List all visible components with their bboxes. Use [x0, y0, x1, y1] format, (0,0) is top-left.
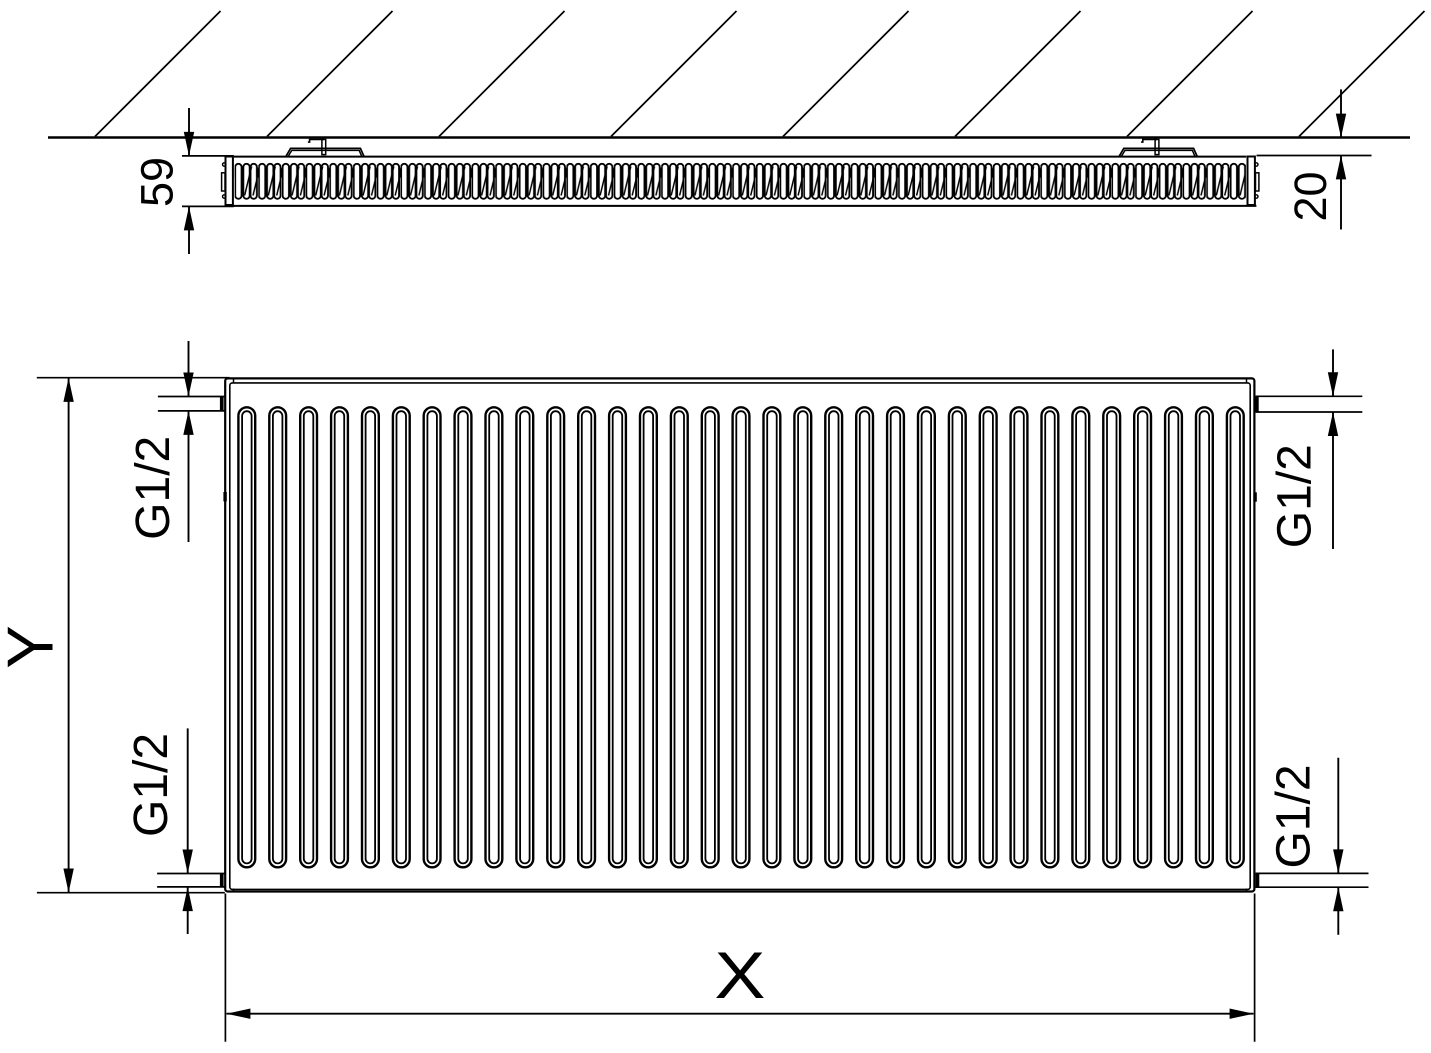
svg-text:59: 59: [132, 157, 183, 207]
svg-text:G1/2: G1/2: [127, 436, 180, 540]
svg-text:20: 20: [1285, 171, 1336, 221]
svg-text:Y: Y: [0, 625, 66, 668]
svg-text:G1/2: G1/2: [1267, 764, 1320, 868]
svg-text:X: X: [714, 939, 765, 1013]
svg-text:G1/2: G1/2: [125, 733, 178, 837]
svg-text:G1/2: G1/2: [1268, 444, 1321, 548]
